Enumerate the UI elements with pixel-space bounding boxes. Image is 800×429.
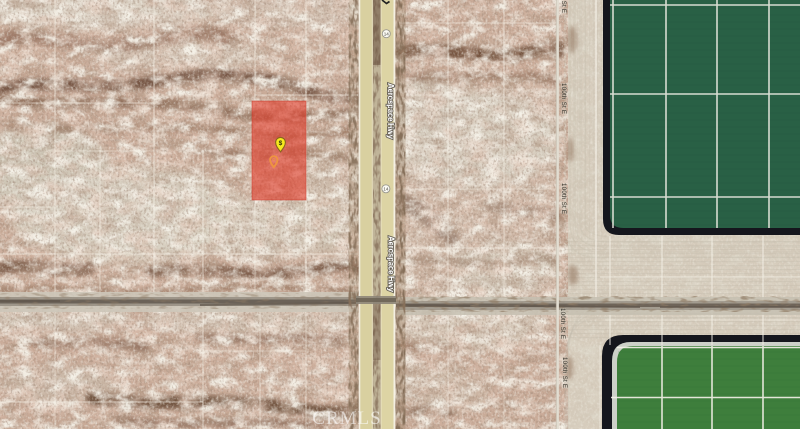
svg-text:100th St E: 100th St E <box>560 83 567 114</box>
svg-text:100th St E: 100th St E <box>561 357 568 388</box>
svg-text:100th St E: 100th St E <box>560 0 567 13</box>
svg-text:14: 14 <box>383 187 389 192</box>
svg-text:$: $ <box>279 140 283 147</box>
svg-text:100th St E: 100th St E <box>559 308 566 339</box>
svg-text:Aerospace Hwy: Aerospace Hwy <box>386 83 395 139</box>
svg-text:Aerospace Hwy: Aerospace Hwy <box>387 236 396 292</box>
svg-text:100th St E: 100th St E <box>560 183 567 214</box>
svg-text:CRMLS: CRMLS <box>312 408 381 429</box>
svg-text:14: 14 <box>384 32 390 37</box>
